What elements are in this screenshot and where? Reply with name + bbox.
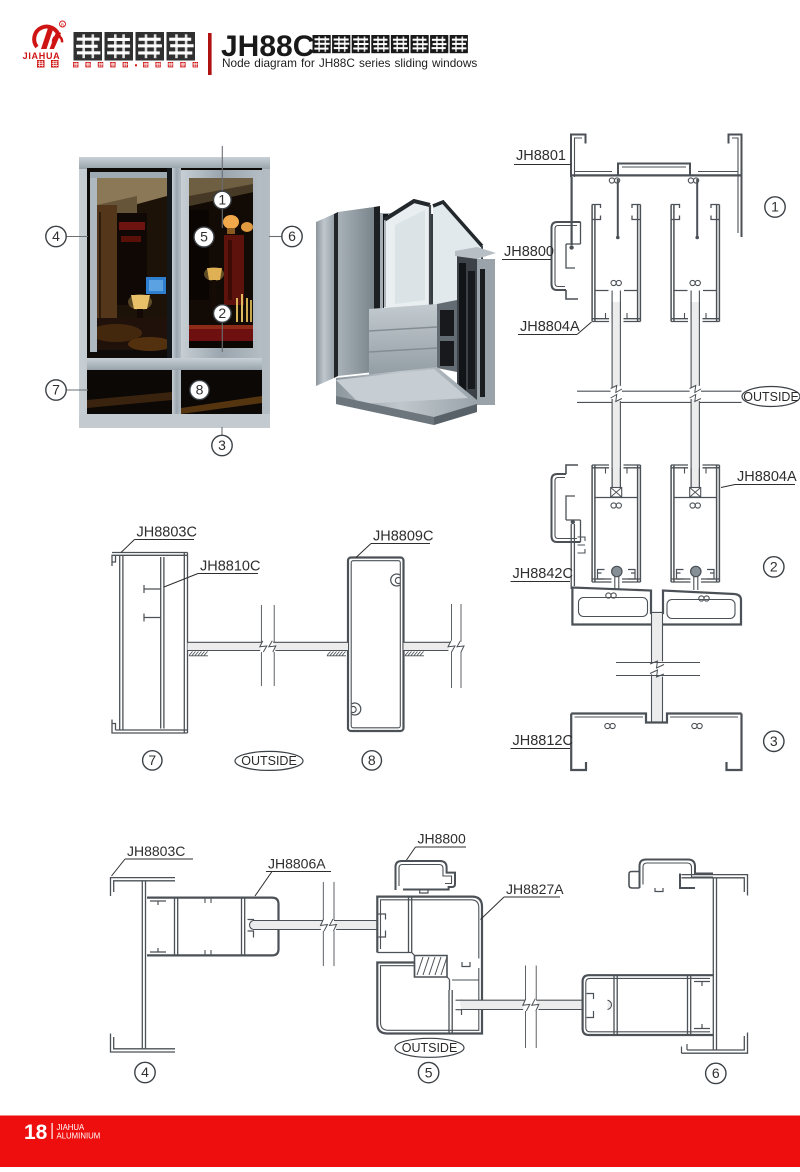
svg-text:4: 4 xyxy=(141,1064,149,1080)
svg-text:JH8800: JH8800 xyxy=(418,831,466,847)
svg-text:5: 5 xyxy=(200,229,208,245)
svg-text:2: 2 xyxy=(218,305,226,321)
svg-text:JH8803C: JH8803C xyxy=(127,843,185,859)
svg-text:6: 6 xyxy=(288,228,296,244)
svg-text:8: 8 xyxy=(196,382,204,398)
svg-text:JH8800: JH8800 xyxy=(504,244,554,260)
svg-text:Node diagram for JH88C series: Node diagram for JH88C series sliding wi… xyxy=(222,56,477,70)
svg-text:3: 3 xyxy=(770,733,778,749)
svg-text:JH8809C: JH8809C xyxy=(373,529,433,545)
svg-text:OUTSIDE: OUTSIDE xyxy=(241,754,297,768)
svg-text:JH8803C: JH8803C xyxy=(137,525,197,541)
svg-text:JIAHUA: JIAHUA xyxy=(23,51,61,61)
svg-text:5: 5 xyxy=(425,1064,433,1080)
svg-text:JH8806A: JH8806A xyxy=(268,856,326,872)
svg-text:2: 2 xyxy=(770,559,778,575)
svg-text:6: 6 xyxy=(712,1065,720,1081)
svg-text:JH8810C: JH8810C xyxy=(200,559,260,575)
svg-text:JH8804A: JH8804A xyxy=(737,469,797,485)
svg-text:JH8842C: JH8842C xyxy=(513,566,573,582)
svg-text:1: 1 xyxy=(771,199,779,215)
svg-text:JH8827A: JH8827A xyxy=(506,881,564,897)
svg-text:JH8801: JH8801 xyxy=(516,148,566,164)
svg-text:4: 4 xyxy=(52,228,60,244)
svg-text:OUTSIDE: OUTSIDE xyxy=(402,1041,458,1055)
svg-text:ALUMINIUM: ALUMINIUM xyxy=(57,1132,101,1141)
svg-text:JH8812C: JH8812C xyxy=(513,733,573,749)
svg-text:R: R xyxy=(61,22,64,27)
svg-text:7: 7 xyxy=(148,752,156,768)
svg-text:OUTSIDE: OUTSIDE xyxy=(743,390,799,404)
svg-text:18: 18 xyxy=(24,1121,48,1144)
svg-text:1: 1 xyxy=(218,192,226,208)
svg-text:3: 3 xyxy=(218,437,226,453)
svg-text:7: 7 xyxy=(52,382,60,398)
svg-text:8: 8 xyxy=(368,752,376,768)
svg-text:JH8804A: JH8804A xyxy=(520,319,580,335)
